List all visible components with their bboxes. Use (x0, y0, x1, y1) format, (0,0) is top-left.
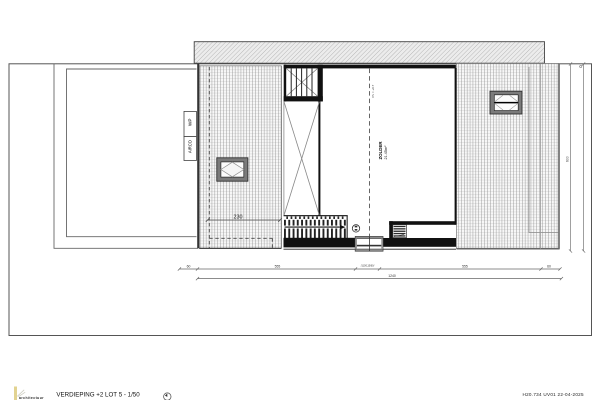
svg-text:ZOLDER: ZOLDER (378, 141, 383, 160)
svg-text:600: 600 (566, 156, 570, 162)
svg-text:230: 230 (234, 214, 243, 220)
svg-text:/110/115/60/: /110/115/60/ (361, 265, 375, 268)
svg-text:1240: 1240 (388, 274, 396, 278)
svg-text:WP: WP (188, 119, 193, 127)
svg-text:Pv = +0.7: Pv = +0.7 (371, 84, 375, 97)
svg-text:555: 555 (462, 264, 468, 268)
svg-text:architectuur: architectuur (19, 396, 44, 400)
svg-text:21.45m²: 21.45m² (384, 145, 388, 160)
svg-text:H20.734 UV01 22-04-2025: H20.734 UV01 22-04-2025 (523, 392, 585, 397)
svg-text:AIRCO: AIRCO (188, 140, 193, 153)
svg-text:60: 60 (547, 264, 551, 268)
svg-text:VERDIEPING +2 LOT 5 - 1/50: VERDIEPING +2 LOT 5 - 1/50 (56, 391, 140, 398)
svg-text:555: 555 (275, 264, 281, 268)
svg-text:60: 60 (187, 264, 191, 268)
